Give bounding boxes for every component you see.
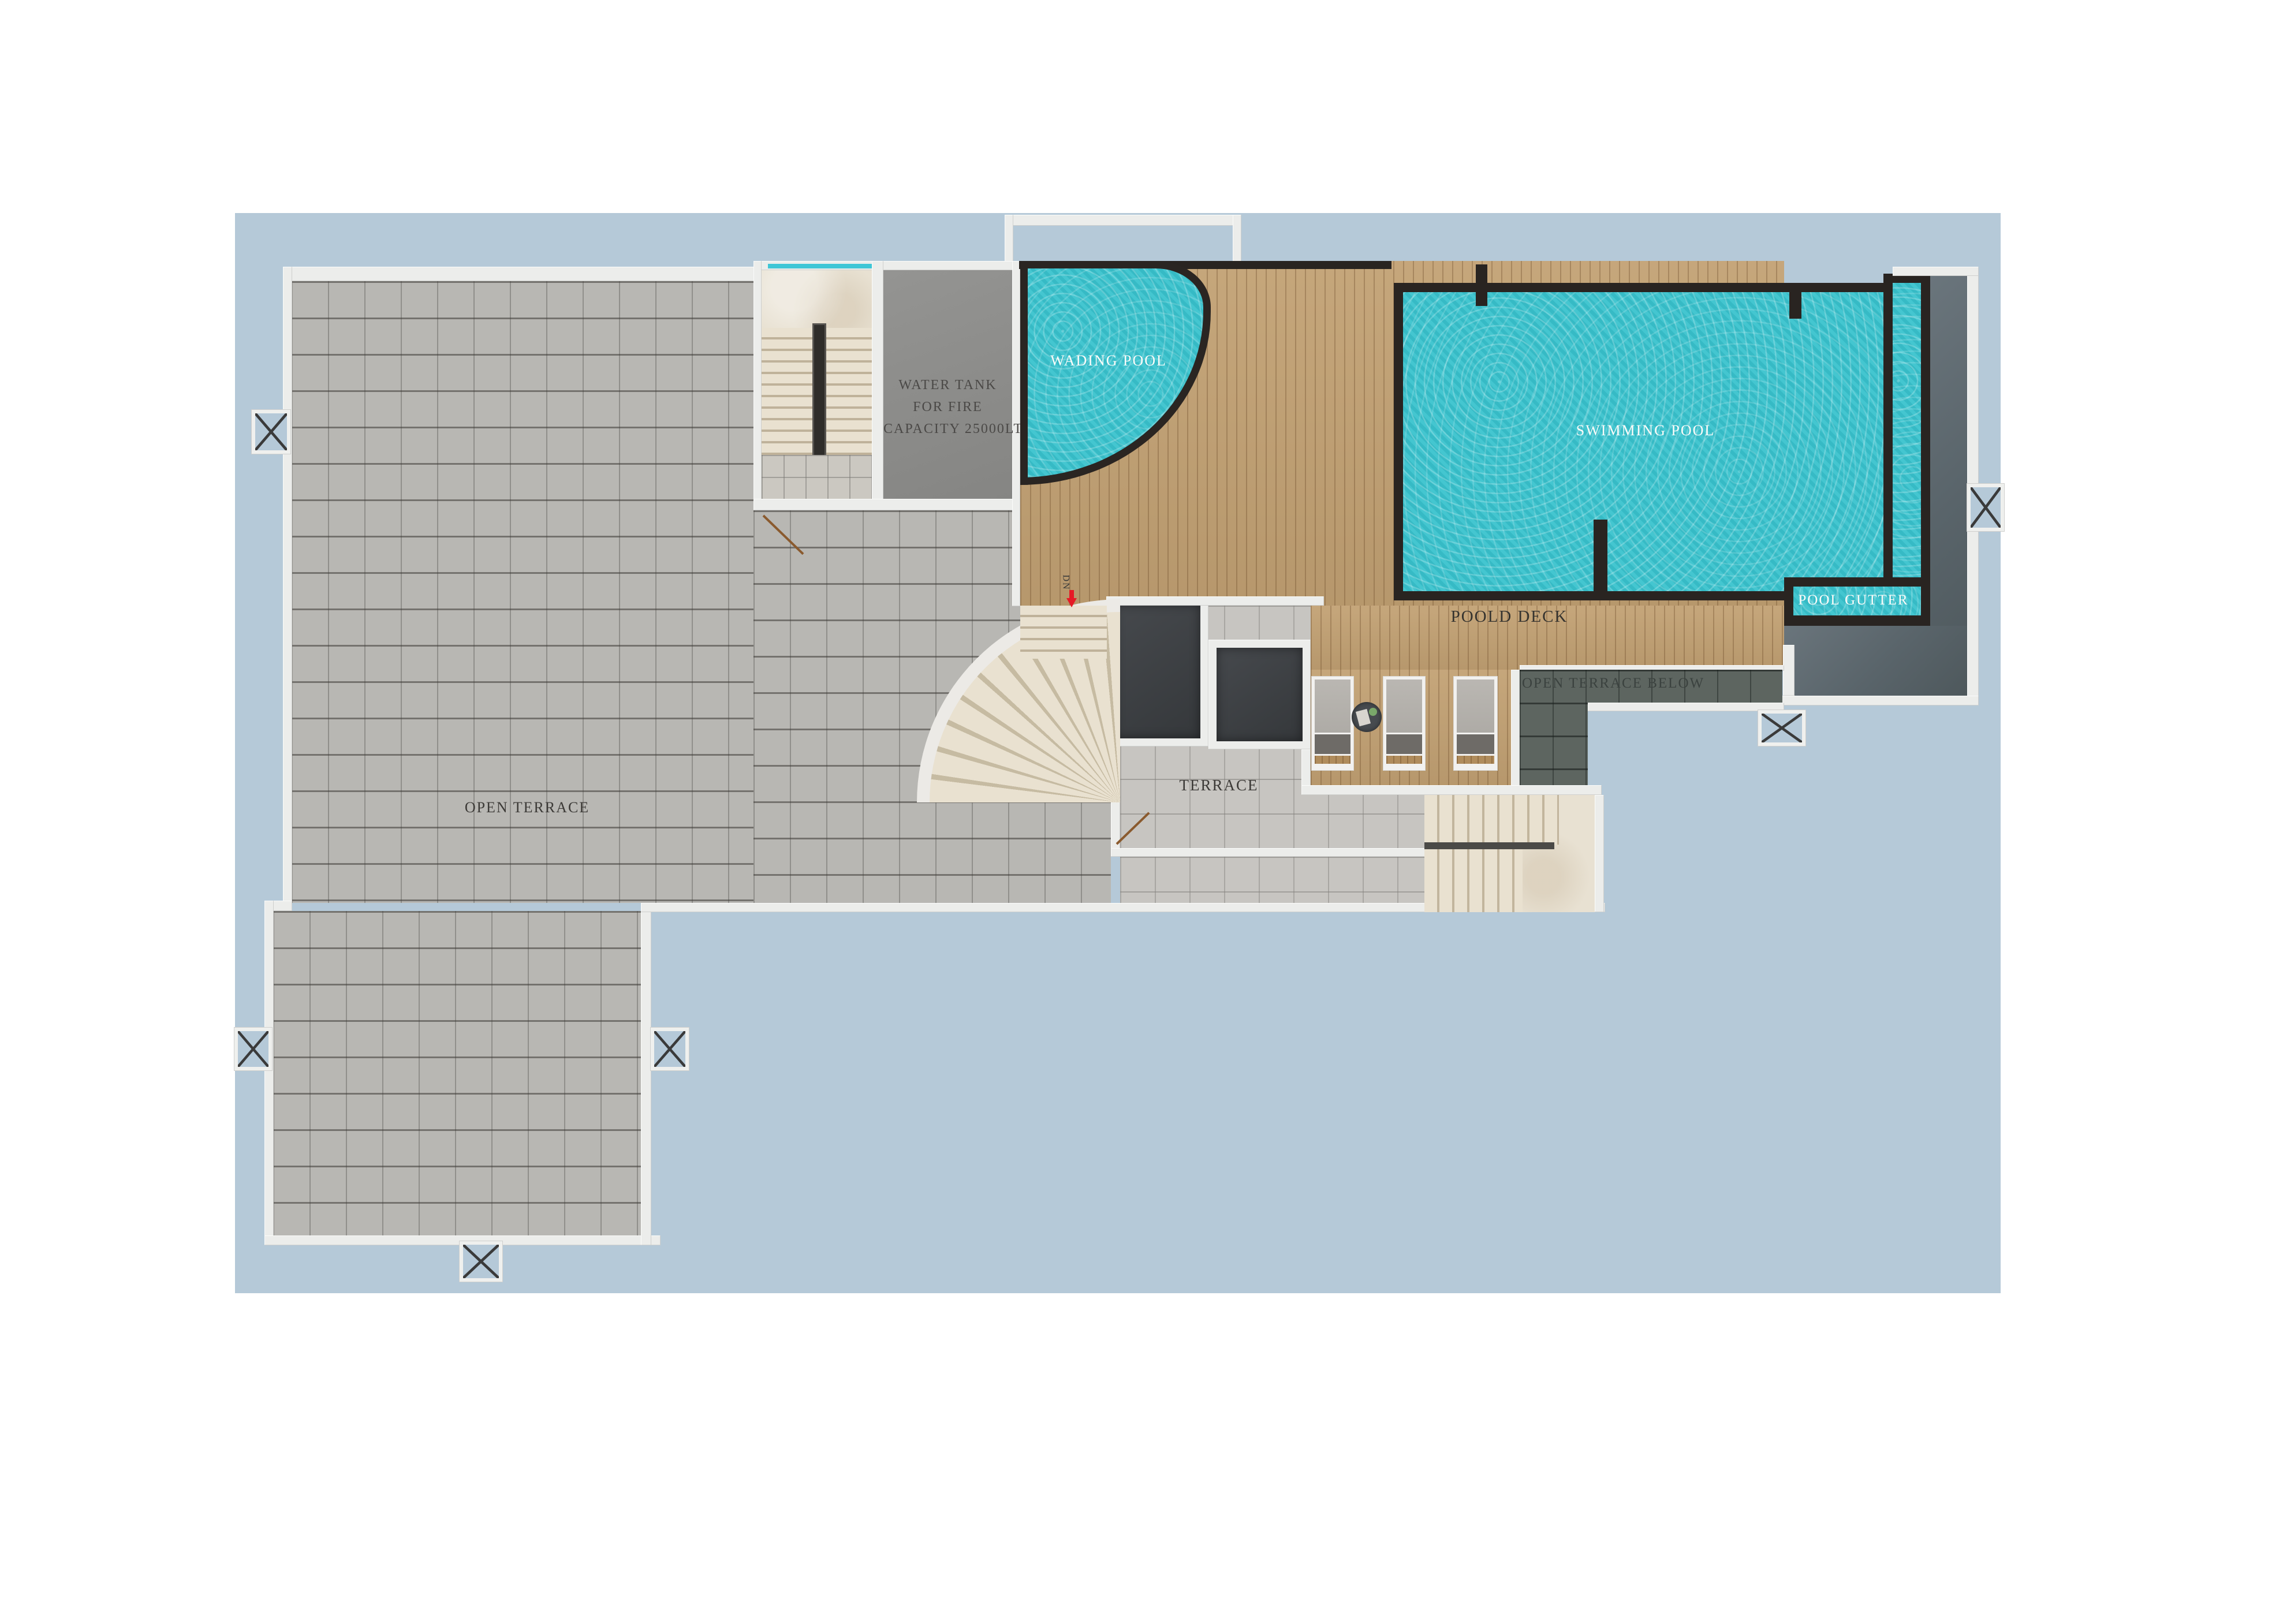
- chair-cushion: [1315, 680, 1350, 733]
- column-marker-icon: [234, 1028, 272, 1070]
- pool-gutter-channel: [1893, 283, 1921, 610]
- stair-handrail: [1424, 842, 1554, 849]
- terrace-room-lower-floor: [1120, 857, 1424, 903]
- chair-foot: [1315, 756, 1350, 764]
- lounge-chair: [1312, 677, 1353, 770]
- terrace-label: TERRACE: [1161, 776, 1277, 794]
- water-tank-label-line1: WATER TANK: [883, 374, 1012, 396]
- chair-cushion: [1457, 680, 1494, 733]
- pool-gutter-label: POOL GUTTER: [1784, 592, 1923, 608]
- elevator-shaft-2: [1217, 648, 1303, 741]
- stair-divider-wall: [812, 323, 826, 457]
- stairwell-glass-strip: [768, 264, 872, 268]
- pool-wall-stub: [1789, 283, 1801, 319]
- chair-pillow: [1315, 734, 1350, 754]
- chair-foot: [1457, 756, 1494, 764]
- wall: [1301, 785, 1602, 795]
- open-terrace-below-label: OPEN TERRACE BELOW: [1522, 675, 1695, 692]
- chair-foot: [1386, 756, 1422, 764]
- side-table: [1352, 702, 1382, 732]
- pool-surround-slate: [1784, 626, 1967, 696]
- water-tank-label-line2: FOR FIRE: [883, 396, 1012, 418]
- pool-divider-wall: [1594, 520, 1607, 600]
- lounge-chair: [1383, 677, 1425, 770]
- open-terrace-lower-floor: [273, 911, 641, 1235]
- pool-deck-label: POOLD DECK: [1423, 607, 1596, 626]
- water-tank-label-line3: CAPACITY 25000LTR: [883, 418, 1012, 440]
- lower-stair-lower-flight: [1424, 849, 1523, 912]
- wall: [1775, 696, 1979, 705]
- table-plant: [1369, 708, 1377, 716]
- floor-plan-canvas: WATER TANK FOR FIRE CAPACITY 25000LTR WA…: [0, 0, 2272, 1624]
- down-stair-treads: [1020, 606, 1107, 659]
- wall: [1106, 596, 1324, 606]
- wall: [872, 261, 883, 510]
- wall: [1511, 670, 1520, 795]
- stairwell-landing-upper: [762, 270, 872, 328]
- column-marker-icon: [651, 1028, 689, 1070]
- wall: [753, 499, 1020, 510]
- wall: [1588, 703, 1784, 711]
- dn-arrow-icon: [1066, 598, 1077, 607]
- wall: [753, 261, 762, 510]
- swimming-pool-label: SWIMMING POOL: [1530, 422, 1761, 439]
- wall: [1595, 795, 1604, 912]
- stair-flight-right: [826, 328, 872, 455]
- balcony-parapet-right: [1233, 215, 1241, 267]
- lounge-chair: [1454, 677, 1497, 770]
- wall: [1783, 645, 1795, 696]
- chair-cushion: [1386, 680, 1422, 733]
- wall: [283, 267, 765, 281]
- wall: [641, 911, 651, 1245]
- wall: [1893, 267, 1979, 276]
- stair-flight-left: [762, 328, 812, 455]
- elevator-shaft-1: [1114, 604, 1200, 738]
- stairwell-landing-lower: [762, 455, 872, 499]
- wall: [264, 901, 274, 1245]
- water-tank-label: WATER TANK FOR FIRE CAPACITY 25000LTR: [883, 374, 1012, 440]
- open-terrace-label: OPEN TERRACE: [441, 799, 614, 816]
- chair-pillow: [1386, 734, 1422, 754]
- wading-pool-label: WADING POOL: [1034, 352, 1184, 369]
- dn-label: DN: [1061, 574, 1071, 590]
- column-marker-icon: [1967, 484, 2004, 531]
- chair-pillow: [1457, 734, 1494, 754]
- swimming-pool: [1394, 283, 1893, 600]
- balcony-parapet-top: [1005, 215, 1241, 226]
- pool-wall-stub: [1476, 264, 1487, 306]
- lower-stair-upper-flight: [1424, 795, 1559, 845]
- balcony-parapet-left: [1005, 215, 1013, 267]
- column-marker-icon: [460, 1241, 502, 1282]
- column-marker-icon: [252, 410, 290, 454]
- wall: [283, 267, 292, 911]
- column-marker-icon: [1758, 710, 1805, 746]
- open-terrace-below-area: [1520, 703, 1588, 785]
